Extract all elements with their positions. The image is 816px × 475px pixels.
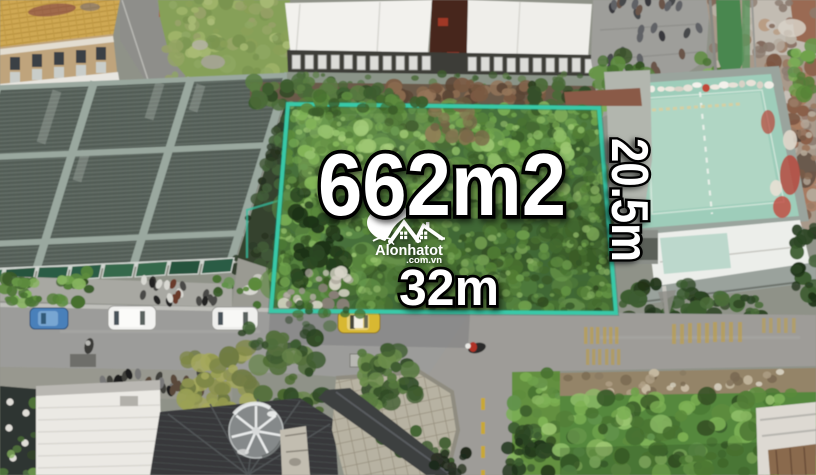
- svg-text:662m2: 662m2: [318, 135, 566, 234]
- svg-text:20.5m: 20.5m: [600, 138, 658, 262]
- svg-text:32m: 32m: [399, 259, 499, 316]
